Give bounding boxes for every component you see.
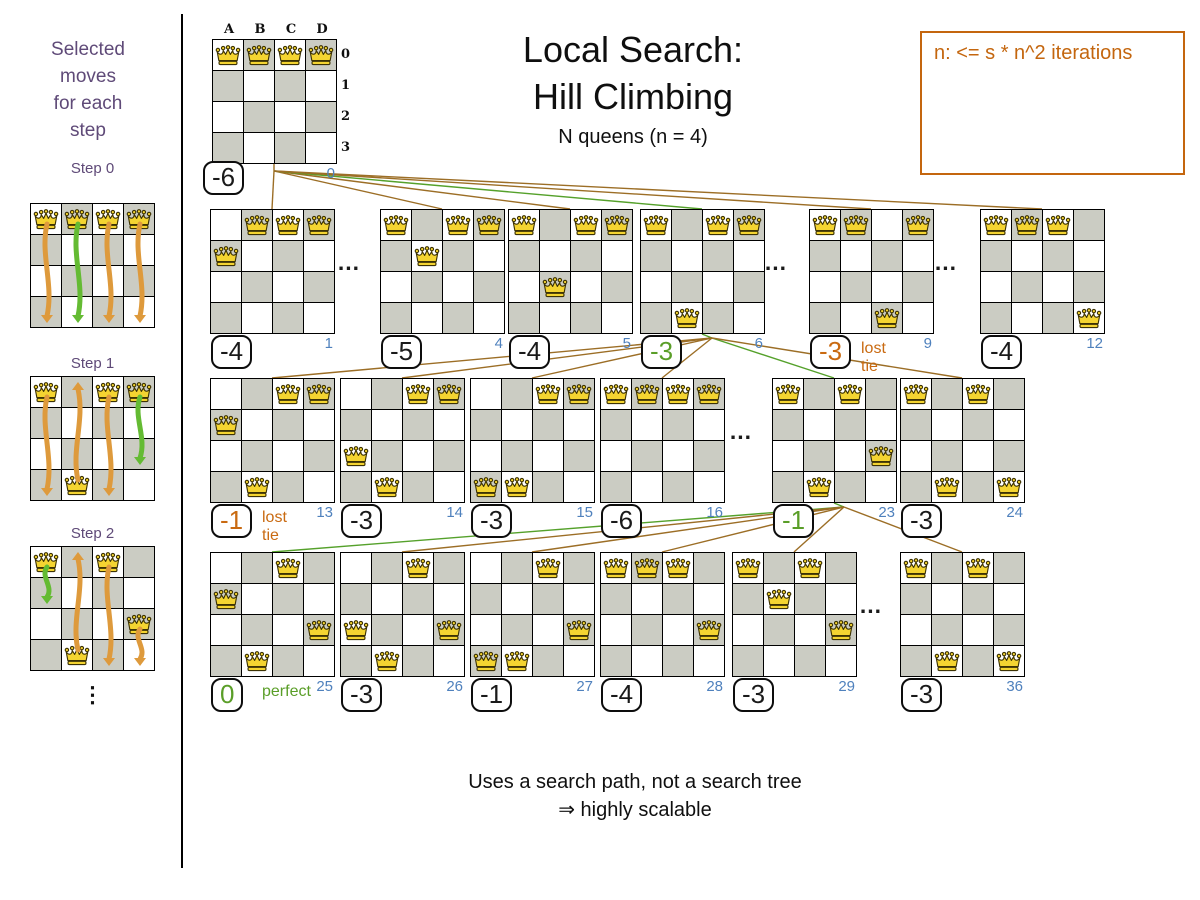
score-badge: -4 bbox=[509, 335, 550, 369]
solution-board bbox=[340, 552, 465, 677]
board-cell bbox=[841, 303, 871, 333]
board-cell bbox=[242, 410, 272, 440]
board-cell bbox=[571, 241, 601, 271]
board-cell bbox=[601, 472, 631, 502]
board-cell bbox=[275, 40, 305, 70]
queen-icon bbox=[933, 647, 961, 675]
board-cell bbox=[242, 553, 272, 583]
root-row-label: 2 bbox=[341, 109, 350, 124]
board-cell bbox=[509, 303, 539, 333]
board-cell bbox=[540, 272, 570, 302]
board-cell bbox=[1012, 303, 1042, 333]
root-column-label: B bbox=[245, 22, 275, 37]
board-cell bbox=[694, 553, 724, 583]
board-cell bbox=[372, 584, 402, 614]
move-arrows-overlay bbox=[30, 203, 155, 328]
board-cell bbox=[571, 303, 601, 333]
board-cell bbox=[304, 553, 334, 583]
solution-board bbox=[210, 378, 335, 503]
board-cell bbox=[372, 553, 402, 583]
board-cell bbox=[443, 303, 473, 333]
queen-icon bbox=[805, 473, 833, 501]
board-cell bbox=[601, 379, 631, 409]
board-cell bbox=[632, 553, 662, 583]
board-cell bbox=[434, 553, 464, 583]
board-cell bbox=[703, 241, 733, 271]
board-cell bbox=[641, 303, 671, 333]
board-cell bbox=[471, 441, 501, 471]
board-cell bbox=[471, 615, 501, 645]
board-cell bbox=[994, 472, 1024, 502]
board-cell bbox=[213, 133, 243, 163]
board-cell bbox=[932, 379, 962, 409]
board-cell bbox=[443, 272, 473, 302]
board-cell bbox=[509, 210, 539, 240]
board-cell bbox=[810, 210, 840, 240]
board-cell bbox=[981, 303, 1011, 333]
root-row-label: 0 bbox=[341, 47, 350, 62]
board-cell bbox=[733, 615, 763, 645]
move-arrow-head bbox=[72, 382, 84, 390]
solution-board bbox=[600, 552, 725, 677]
board-cell bbox=[602, 272, 632, 302]
move-arrow-icon bbox=[76, 559, 80, 650]
board-cell bbox=[474, 241, 504, 271]
board-cell bbox=[795, 553, 825, 583]
board-cell bbox=[244, 102, 274, 132]
board-cell bbox=[403, 584, 433, 614]
board-cell bbox=[994, 584, 1024, 614]
board-cell bbox=[632, 615, 662, 645]
board-cell bbox=[273, 553, 303, 583]
move-arrow-head bbox=[41, 315, 53, 323]
board-cell bbox=[872, 272, 902, 302]
board-cell bbox=[1012, 272, 1042, 302]
board-cell bbox=[764, 646, 794, 676]
board-cell bbox=[663, 615, 693, 645]
board-cell bbox=[304, 441, 334, 471]
move-arrow-icon bbox=[107, 397, 111, 489]
queen-icon bbox=[243, 211, 271, 239]
queen-icon bbox=[382, 211, 410, 239]
move-arrow-icon bbox=[138, 397, 142, 458]
queen-icon bbox=[603, 211, 631, 239]
step-label: Step 1 bbox=[30, 355, 155, 372]
board-cell bbox=[903, 272, 933, 302]
queen-icon bbox=[342, 616, 370, 644]
board-cell bbox=[533, 441, 563, 471]
score-badge: -3 bbox=[810, 335, 851, 369]
queen-icon bbox=[633, 554, 661, 582]
move-arrows-overlay bbox=[30, 376, 155, 501]
queen-icon bbox=[404, 380, 432, 408]
board-cell bbox=[804, 410, 834, 440]
solution-board bbox=[600, 378, 725, 503]
board-cell bbox=[981, 210, 1011, 240]
board-cell bbox=[211, 210, 241, 240]
board-cell bbox=[903, 303, 933, 333]
queen-icon bbox=[243, 647, 271, 675]
queen-icon bbox=[695, 380, 723, 408]
board-cell bbox=[443, 241, 473, 271]
solution-board bbox=[640, 209, 765, 334]
queen-icon bbox=[245, 41, 273, 69]
queen-icon bbox=[642, 211, 670, 239]
board-cell bbox=[810, 272, 840, 302]
board-cell bbox=[242, 472, 272, 502]
queen-icon bbox=[964, 554, 992, 582]
board-cell bbox=[994, 441, 1024, 471]
queen-icon bbox=[472, 647, 500, 675]
board-cell bbox=[672, 210, 702, 240]
queen-icon bbox=[307, 41, 335, 69]
score-badge: -4 bbox=[981, 335, 1022, 369]
board-cell bbox=[810, 303, 840, 333]
board-cell bbox=[275, 102, 305, 132]
score-badge: -1 bbox=[471, 678, 512, 712]
board-cell bbox=[981, 241, 1011, 271]
board-cell bbox=[304, 241, 334, 271]
queen-icon bbox=[867, 442, 895, 470]
queen-icon bbox=[734, 554, 762, 582]
queen-icon bbox=[796, 554, 824, 582]
board-cell bbox=[564, 441, 594, 471]
queen-icon bbox=[995, 473, 1023, 501]
move-arrow-head bbox=[103, 488, 115, 496]
board-cell bbox=[866, 472, 896, 502]
board-cell bbox=[663, 553, 693, 583]
board-cell bbox=[443, 210, 473, 240]
board-cell bbox=[434, 615, 464, 645]
board-cell bbox=[1012, 241, 1042, 271]
board-cell bbox=[502, 410, 532, 440]
board-cell bbox=[1074, 210, 1104, 240]
board-cell bbox=[273, 303, 303, 333]
root-board bbox=[212, 39, 337, 164]
queen-icon bbox=[565, 380, 593, 408]
board-cell bbox=[1074, 303, 1104, 333]
score-badge: -6 bbox=[601, 504, 642, 538]
step-board bbox=[30, 546, 155, 671]
board-cell bbox=[304, 472, 334, 502]
board-cell bbox=[994, 553, 1024, 583]
board-cell bbox=[273, 210, 303, 240]
board-cell bbox=[244, 71, 274, 101]
board-cell bbox=[306, 71, 336, 101]
board-cell bbox=[872, 210, 902, 240]
board-cell bbox=[242, 646, 272, 676]
queen-icon bbox=[836, 380, 864, 408]
board-cell bbox=[764, 615, 794, 645]
board-cell bbox=[403, 441, 433, 471]
board-cell bbox=[502, 584, 532, 614]
board-cell bbox=[381, 303, 411, 333]
queen-icon bbox=[873, 304, 901, 332]
connector-line bbox=[274, 171, 871, 209]
board-cell bbox=[273, 379, 303, 409]
board-cell bbox=[412, 272, 442, 302]
queen-icon bbox=[827, 616, 855, 644]
queen-icon bbox=[565, 616, 593, 644]
queen-icon bbox=[633, 380, 661, 408]
board-cell bbox=[273, 584, 303, 614]
move-arrow-head bbox=[134, 658, 146, 666]
board-cell bbox=[502, 441, 532, 471]
queen-icon bbox=[664, 554, 692, 582]
score-badge: -3 bbox=[733, 678, 774, 712]
board-cell bbox=[601, 646, 631, 676]
board-cell bbox=[872, 241, 902, 271]
board-cell bbox=[434, 379, 464, 409]
board-cell bbox=[795, 615, 825, 645]
board-cell bbox=[981, 272, 1011, 302]
board-cell bbox=[835, 410, 865, 440]
board-cell bbox=[242, 303, 272, 333]
board-cell bbox=[304, 210, 334, 240]
row-ellipsis: ... bbox=[721, 418, 761, 445]
board-cell bbox=[663, 441, 693, 471]
board-cell bbox=[242, 379, 272, 409]
board-cell bbox=[601, 553, 631, 583]
board-cell bbox=[734, 272, 764, 302]
board-cell bbox=[273, 615, 303, 645]
connector-line bbox=[274, 171, 702, 209]
board-cell bbox=[932, 441, 962, 471]
score-badge: -3 bbox=[471, 504, 512, 538]
board-cell bbox=[602, 210, 632, 240]
board-cell bbox=[471, 584, 501, 614]
solution-board bbox=[210, 552, 335, 677]
board-cell bbox=[994, 379, 1024, 409]
board-cell bbox=[471, 646, 501, 676]
move-arrow-head bbox=[103, 658, 115, 666]
board-cell bbox=[963, 379, 993, 409]
board-cell bbox=[810, 241, 840, 271]
root-row-label: 3 bbox=[341, 140, 350, 155]
queen-icon bbox=[602, 380, 630, 408]
board-cell bbox=[663, 584, 693, 614]
board-cell bbox=[211, 615, 241, 645]
score-tag: lost tie bbox=[262, 509, 287, 545]
board-cell bbox=[471, 379, 501, 409]
queen-icon bbox=[305, 380, 333, 408]
queen-icon bbox=[995, 647, 1023, 675]
board-cell bbox=[804, 472, 834, 502]
board-cell bbox=[641, 210, 671, 240]
board-cell bbox=[211, 441, 241, 471]
board-cell bbox=[372, 441, 402, 471]
root-row-label: 1 bbox=[341, 78, 350, 93]
board-cell bbox=[641, 241, 671, 271]
board-cell bbox=[434, 472, 464, 502]
board-cell bbox=[381, 241, 411, 271]
board-cell bbox=[641, 272, 671, 302]
board-cell bbox=[211, 272, 241, 302]
queen-icon bbox=[695, 616, 723, 644]
footer-line-1: Uses a search path, not a search tree bbox=[330, 768, 940, 796]
board-cell bbox=[403, 410, 433, 440]
board-cell bbox=[601, 584, 631, 614]
board-cell bbox=[471, 553, 501, 583]
board-cell bbox=[403, 472, 433, 502]
board-cell bbox=[244, 40, 274, 70]
queen-icon bbox=[373, 647, 401, 675]
board-cell bbox=[932, 646, 962, 676]
board-cell bbox=[273, 472, 303, 502]
board-cell bbox=[764, 553, 794, 583]
board-cell bbox=[341, 553, 371, 583]
root-column-label: C bbox=[276, 22, 306, 37]
move-arrow-icon bbox=[45, 397, 49, 489]
board-cell bbox=[694, 615, 724, 645]
board-cell bbox=[773, 472, 803, 502]
board-cell bbox=[602, 241, 632, 271]
board-cell bbox=[901, 410, 931, 440]
move-arrow-head bbox=[41, 596, 53, 604]
board-cell bbox=[632, 379, 662, 409]
queen-icon bbox=[735, 211, 763, 239]
board-cell bbox=[540, 303, 570, 333]
board-cell bbox=[381, 210, 411, 240]
board-cell bbox=[244, 133, 274, 163]
board-cell bbox=[211, 379, 241, 409]
score-badge: -1 bbox=[773, 504, 814, 538]
board-cell bbox=[509, 241, 539, 271]
queen-icon bbox=[704, 211, 732, 239]
score-badge: -3 bbox=[341, 678, 382, 712]
board-cell bbox=[963, 615, 993, 645]
board-cell bbox=[341, 646, 371, 676]
queen-icon bbox=[503, 647, 531, 675]
footer-text: Uses a search path, not a search tree ⇒ … bbox=[330, 768, 940, 824]
queen-icon bbox=[904, 211, 932, 239]
board-cell bbox=[403, 553, 433, 583]
board-cell bbox=[502, 379, 532, 409]
board-cell bbox=[564, 646, 594, 676]
board-cell bbox=[273, 646, 303, 676]
board-cell bbox=[564, 410, 594, 440]
queen-icon bbox=[274, 211, 302, 239]
board-cell bbox=[540, 241, 570, 271]
board-cell bbox=[694, 410, 724, 440]
board-cell bbox=[1074, 272, 1104, 302]
board-cell bbox=[341, 584, 371, 614]
board-cell bbox=[694, 646, 724, 676]
board-cell bbox=[242, 584, 272, 614]
board-cell bbox=[412, 241, 442, 271]
step-board bbox=[30, 376, 155, 501]
board-cell bbox=[734, 210, 764, 240]
board-cell bbox=[932, 553, 962, 583]
board-cell bbox=[672, 272, 702, 302]
board-cell bbox=[372, 615, 402, 645]
board-cell bbox=[872, 303, 902, 333]
queen-icon bbox=[212, 411, 240, 439]
board-cell bbox=[734, 241, 764, 271]
board-cell bbox=[533, 553, 563, 583]
board-cell bbox=[773, 379, 803, 409]
move-arrow-head bbox=[72, 315, 84, 323]
board-cell bbox=[533, 584, 563, 614]
solution-board bbox=[380, 209, 505, 334]
score-tag: lost tie bbox=[861, 340, 886, 376]
board-cell bbox=[304, 303, 334, 333]
board-cell bbox=[835, 441, 865, 471]
board-cell bbox=[533, 615, 563, 645]
move-arrow-head bbox=[134, 457, 146, 465]
queen-icon bbox=[673, 304, 701, 332]
board-cell bbox=[304, 272, 334, 302]
board-cell bbox=[273, 241, 303, 271]
board-cell bbox=[533, 410, 563, 440]
score-badge: -3 bbox=[641, 335, 682, 369]
board-cell bbox=[963, 410, 993, 440]
board-cell bbox=[412, 210, 442, 240]
queen-icon bbox=[964, 380, 992, 408]
row-ellipsis: ... bbox=[851, 592, 891, 619]
connector-line bbox=[274, 171, 1042, 209]
board-cell bbox=[733, 553, 763, 583]
move-arrow-icon bbox=[45, 224, 49, 316]
solution-board bbox=[772, 378, 897, 503]
board-cell bbox=[304, 646, 334, 676]
step-board bbox=[30, 203, 155, 328]
move-arrow-head bbox=[103, 315, 115, 323]
queen-icon bbox=[435, 380, 463, 408]
board-cell bbox=[502, 472, 532, 502]
move-arrow-icon bbox=[107, 224, 111, 316]
board-cell bbox=[826, 584, 856, 614]
solution-board bbox=[900, 378, 1025, 503]
board-cell bbox=[306, 40, 336, 70]
board-cell bbox=[963, 441, 993, 471]
queen-icon bbox=[510, 211, 538, 239]
board-cell bbox=[901, 615, 931, 645]
board-cell bbox=[275, 133, 305, 163]
board-cell bbox=[1074, 241, 1104, 271]
queen-icon bbox=[404, 554, 432, 582]
board-cell bbox=[804, 379, 834, 409]
board-cell bbox=[901, 441, 931, 471]
board-cell bbox=[533, 646, 563, 676]
score-badge: -1 bbox=[211, 504, 252, 538]
board-cell bbox=[403, 646, 433, 676]
move-arrow-head bbox=[134, 315, 146, 323]
move-arrow-icon bbox=[138, 629, 142, 659]
queen-icon bbox=[534, 380, 562, 408]
score-tag: perfect bbox=[262, 683, 311, 701]
board-cell bbox=[304, 379, 334, 409]
board-cell bbox=[703, 272, 733, 302]
board-cell bbox=[795, 646, 825, 676]
board-cell bbox=[571, 210, 601, 240]
board-cell bbox=[903, 241, 933, 271]
board-cell bbox=[564, 615, 594, 645]
board-cell bbox=[734, 303, 764, 333]
board-cell bbox=[242, 272, 272, 302]
board-cell bbox=[663, 379, 693, 409]
solution-board bbox=[340, 378, 465, 503]
queen-icon bbox=[774, 380, 802, 408]
score-badge: -5 bbox=[381, 335, 422, 369]
board-cell bbox=[903, 210, 933, 240]
queen-icon bbox=[1075, 304, 1103, 332]
board-cell bbox=[994, 646, 1024, 676]
board-cell bbox=[764, 584, 794, 614]
queen-icon bbox=[214, 41, 242, 69]
board-cell bbox=[273, 441, 303, 471]
board-cell bbox=[663, 410, 693, 440]
